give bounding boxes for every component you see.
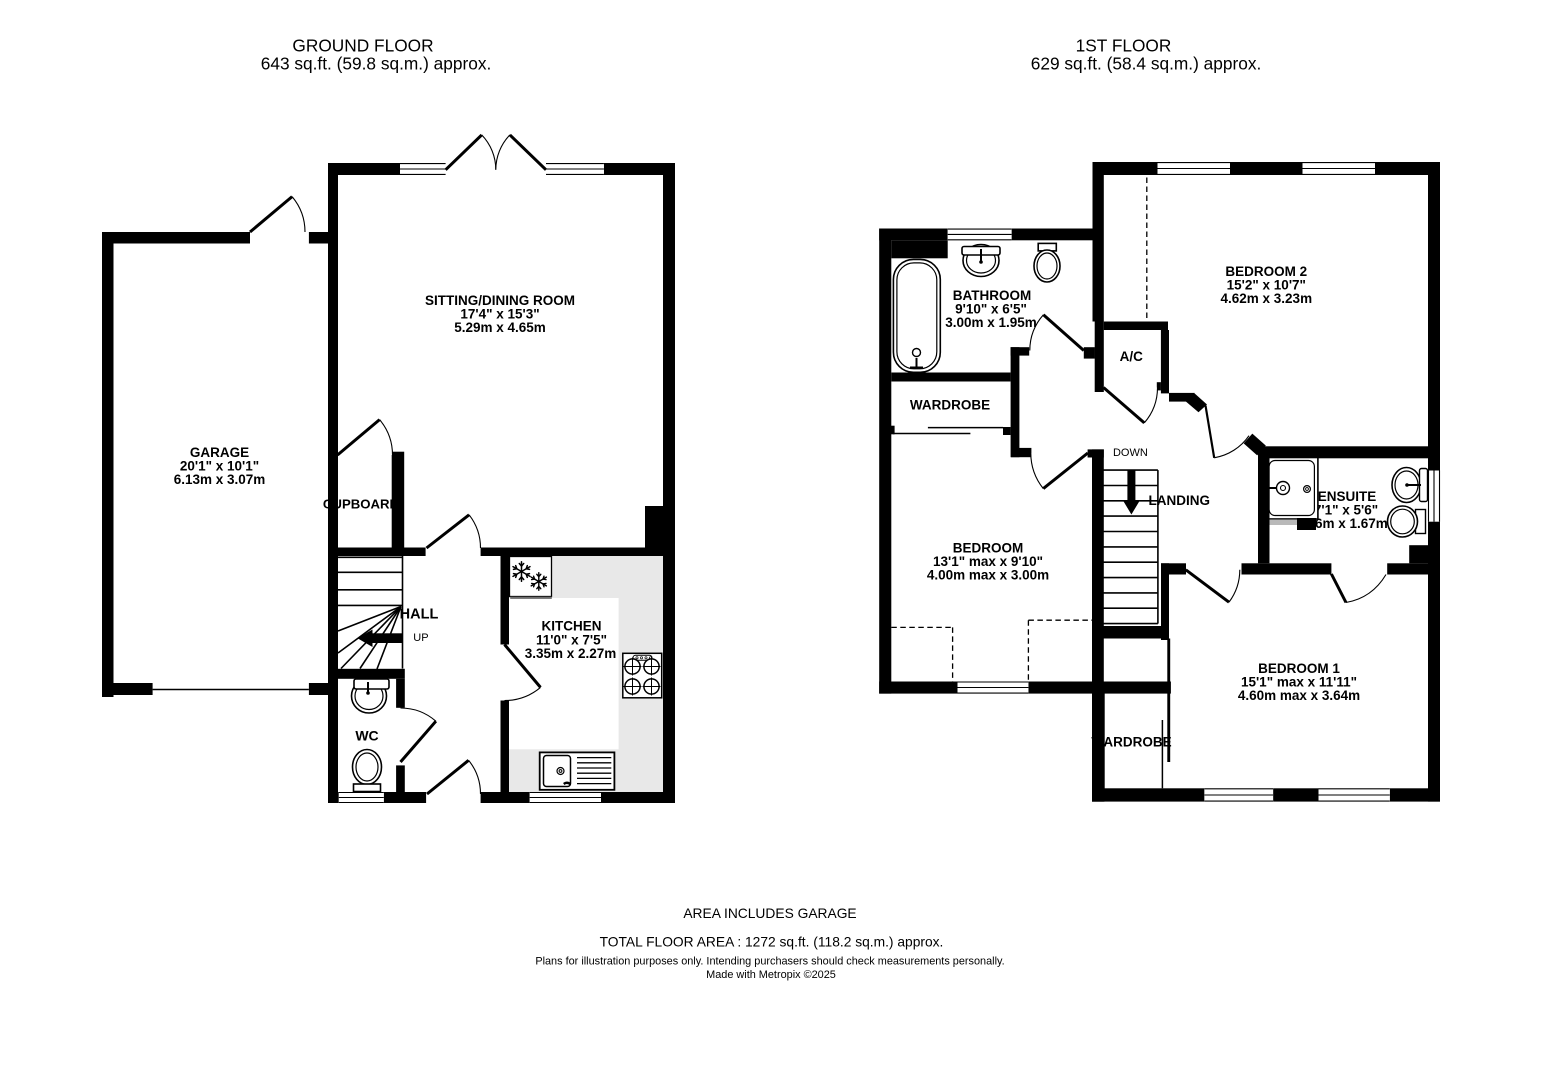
svg-text:3.00m x 1.95m: 3.00m x 1.95m [945, 315, 1037, 330]
svg-text:4.62m x 3.23m: 4.62m x 3.23m [1221, 291, 1313, 306]
svg-text:Plans for illustration purpose: Plans for illustration purposes only. In… [535, 956, 1004, 968]
svg-text:AREA INCLUDES GARAGE: AREA INCLUDES GARAGE [683, 906, 856, 921]
svg-text:HALL: HALL [400, 606, 439, 622]
svg-text:A/C: A/C [1120, 349, 1144, 364]
svg-text:4.00m max x 3.00m: 4.00m max x 3.00m [927, 567, 1049, 582]
svg-text:3.35m x 2.27m: 3.35m x 2.27m [525, 646, 617, 661]
svg-text:5.29m x 4.65m: 5.29m x 4.65m [454, 320, 546, 335]
svg-text:DOWN: DOWN [1113, 447, 1148, 459]
svg-text:643 sq.ft. (59.8 sq.m.) approx: 643 sq.ft. (59.8 sq.m.) approx. [261, 53, 492, 73]
svg-text:TOTAL FLOOR AREA : 1272 sq.ft.: TOTAL FLOOR AREA : 1272 sq.ft. (118.2 sq… [600, 935, 944, 950]
svg-text:4.60m max x 3.64m: 4.60m max x 3.64m [1238, 688, 1360, 703]
svg-text:629 sq.ft. (58.4 sq.m.) approx: 629 sq.ft. (58.4 sq.m.) approx. [1031, 53, 1262, 73]
svg-text:WARDROBE: WARDROBE [910, 398, 990, 413]
svg-text:6.13m x 3.07m: 6.13m x 3.07m [174, 472, 266, 487]
svg-text:KITCHEN: KITCHEN [542, 618, 602, 633]
svg-text:WC: WC [355, 728, 378, 744]
svg-text:Made with Metropix ©2025: Made with Metropix ©2025 [706, 969, 836, 981]
svg-text:LANDING: LANDING [1149, 493, 1211, 508]
svg-text:UP: UP [413, 632, 428, 644]
